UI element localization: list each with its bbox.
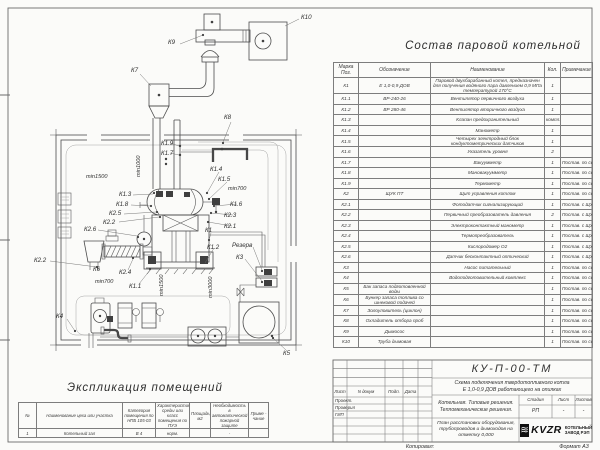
parts-row-cell: Постав. по согласов. bbox=[561, 157, 593, 168]
parts-row-cell: Постав. по согласов. bbox=[561, 168, 593, 179]
parts-row-cell: Труба дымовая bbox=[359, 337, 431, 348]
parts-row-cell: 1 bbox=[545, 241, 561, 252]
equipment-label-К1.5: К1.5 bbox=[218, 176, 231, 183]
parts-row-cell: Первичный преобразователь давления bbox=[431, 210, 545, 221]
equipment-label-К2.2: К2.2 bbox=[34, 257, 47, 264]
parts-row-cell: К1.2 bbox=[334, 104, 359, 115]
sheet-name: План расстановки оборудования, трубопров… bbox=[434, 419, 518, 441]
parts-row-cell: ЩУК ПТ bbox=[359, 189, 431, 200]
parts-row-cell: Постав. по согласов. bbox=[561, 273, 593, 284]
parts-row: К8Охладитель отбора проб1Постав. по согл… bbox=[334, 316, 593, 327]
equipment-label-К1.3: К1.3 bbox=[119, 191, 132, 198]
parts-row-cell: 2 bbox=[545, 147, 561, 158]
parts-row: К1.3Клапан предохранительныйкомпл. bbox=[334, 115, 593, 126]
document-title: Схема подключения твердотопливного котла… bbox=[434, 379, 590, 394]
column-header: Наименование bbox=[431, 63, 545, 78]
parts-row-cell: К1.3 bbox=[334, 115, 359, 126]
parts-row-cell: Вентилятор вторичного воздуха bbox=[431, 104, 545, 115]
parts-row-cell: Постав. по согласов. bbox=[561, 337, 593, 348]
column-header: Обозначение bbox=[359, 63, 431, 78]
parts-row-cell: 1 bbox=[545, 294, 561, 305]
fuel-bunker-k6 bbox=[84, 230, 152, 270]
parts-row-cell: 1 bbox=[545, 305, 561, 316]
parts-row-cell: ВР-240-26 bbox=[359, 94, 431, 105]
parts-row-cell: Дымосос bbox=[359, 326, 431, 337]
parts-row-cell: К2.4 bbox=[334, 231, 359, 242]
parts-row-cell: ВР 280-46 bbox=[359, 104, 431, 115]
parts-row: К10Труба дымовая1Постав. по согласов. bbox=[334, 337, 593, 348]
drawing-sheet: К10К9К7К8К1.9К1.7К1.4К1.5К1.6К2.3К2.1К1К… bbox=[0, 0, 600, 450]
parts-row-cell bbox=[561, 78, 593, 94]
parts-row-cell: 1 bbox=[545, 168, 561, 179]
equipment-label-К1.9: К1.9 bbox=[161, 140, 174, 147]
parts-row-cell: 1 bbox=[545, 178, 561, 189]
parts-row: К2.5Кислородомер О21Постав. с ЩУК ПТ bbox=[334, 241, 593, 252]
parts-row-cell bbox=[561, 136, 593, 147]
water-tank-k5 bbox=[239, 302, 279, 343]
parts-row-cell bbox=[359, 115, 431, 126]
equipment-label-К3: К3 bbox=[236, 254, 244, 261]
parts-row-cell: 1 bbox=[545, 199, 561, 210]
parts-row-cell: Бункер запаса топлива со шнековой подаче… bbox=[359, 294, 431, 305]
parts-row-cell: Постав. по согласов. bbox=[561, 326, 593, 337]
parts-row-cell: К1.8 bbox=[334, 168, 359, 179]
equipment-label-К2.4: К2.4 bbox=[119, 269, 132, 276]
parts-row-cell: Постав. по согласов. bbox=[561, 305, 593, 316]
parts-row-cell: К2.6 bbox=[334, 252, 359, 263]
dimension-label-min1500: min1500 bbox=[159, 274, 165, 296]
parts-row-cell: Термопреобразователь bbox=[431, 231, 545, 242]
parts-row-cell: К2 bbox=[334, 189, 359, 200]
parts-row: К2.1Фотодатчик сигнализирующий1Постав. с… bbox=[334, 199, 593, 210]
equipment-label-К2.5: К2.5 bbox=[109, 210, 122, 217]
column-header: Необходимость в автоматической пожарной … bbox=[211, 403, 249, 429]
parts-row-cell: Манометр bbox=[431, 125, 545, 136]
parts-row-cell bbox=[359, 262, 431, 273]
parts-row-cell: К2.3 bbox=[334, 220, 359, 231]
equipment-label-К1: К1 bbox=[205, 227, 212, 234]
parts-row: К2.6Датчик бесконтактный оптический1Пост… bbox=[334, 252, 593, 263]
parts-row: К7Золоуловитель (циклон)1Постав. по согл… bbox=[334, 305, 593, 316]
parts-row: К1.8Мановакуумметр1Постав. по согласов. bbox=[334, 168, 593, 179]
equipment-label-К1.6: К1.6 bbox=[230, 201, 243, 208]
equipment-label-К10: К10 bbox=[301, 14, 312, 21]
parts-row-cell: 1 bbox=[545, 125, 561, 136]
parts-row: К2ЩУК ПТЩит управления котлом1Постав. по… bbox=[334, 189, 593, 200]
parts-row: К1.9Термометр1Постав. по согласов. bbox=[334, 178, 593, 189]
parts-row-cell: К2.1 bbox=[334, 199, 359, 210]
sheet-value: - bbox=[552, 405, 575, 418]
parts-row-cell: 1 bbox=[545, 283, 561, 294]
parts-row: К3Насос питательный1Постав. по согласов. bbox=[334, 262, 593, 273]
parts-row: К1.5Четырех электродный блок кондуктомет… bbox=[334, 136, 593, 147]
sheets-col-label: Листов bbox=[575, 395, 592, 405]
boiler-body bbox=[152, 215, 209, 262]
parts-row-cell: Постав. с ЩУК ПТ bbox=[561, 199, 593, 210]
parts-row-cell: 2 bbox=[545, 210, 561, 221]
exhaust-duct bbox=[196, 30, 250, 42]
parts-row-cell: Постав. по согласов. bbox=[561, 178, 593, 189]
col-sign: Подп. bbox=[385, 387, 403, 396]
equipment-label-К1.8: К1.8 bbox=[116, 201, 129, 208]
parts-row-cell: Насос питательный bbox=[431, 262, 545, 273]
explication-row: 1Котельный залВ 4норм.- bbox=[19, 429, 269, 438]
parts-row-cell bbox=[359, 125, 431, 136]
sheet-col-label: Лист bbox=[552, 395, 575, 405]
parts-row-cell: 1 bbox=[545, 104, 561, 115]
equipment-label-К2.2: К2.2 bbox=[103, 219, 116, 226]
parts-row-cell bbox=[431, 305, 545, 316]
parts-row-cell bbox=[359, 231, 431, 242]
parts-row-cell: К8 bbox=[334, 316, 359, 327]
boiler-drum bbox=[147, 189, 203, 215]
parts-row-cell: К1.5 bbox=[334, 136, 359, 147]
parts-row-cell: Клапан предохранительный bbox=[431, 115, 545, 126]
parts-row-cell: 1 bbox=[545, 337, 561, 348]
parts-row-cell: Постав. с ЩУК ПТ bbox=[561, 252, 593, 263]
parts-row-cell bbox=[359, 136, 431, 147]
parts-row-cell: Электроконтактный манометр bbox=[431, 220, 545, 231]
explication-row-cell: В 4 bbox=[123, 429, 156, 438]
column-header: Приме - чание bbox=[249, 403, 269, 429]
object-name: Котельная. Типовые решения. Тепломеханич… bbox=[434, 396, 518, 417]
parts-row-cell: Указатель уровня bbox=[431, 147, 545, 158]
parts-row-cell bbox=[561, 104, 593, 115]
equipment-label-Резерв: Резерв bbox=[232, 242, 253, 249]
parts-row-cell: Датчик бесконтактный оптический bbox=[431, 252, 545, 263]
parts-row-cell: Постав. по согласов. bbox=[561, 316, 593, 327]
equipment-label-К1.7: К1.7 bbox=[161, 150, 174, 157]
parts-row-cell: Щит управления котлом bbox=[431, 189, 545, 200]
explication-row-cell bbox=[249, 429, 269, 438]
equipment-label-К1.4: К1.4 bbox=[210, 166, 223, 173]
dimension-label-min1000: min1000 bbox=[136, 155, 142, 177]
parts-row-cell: Фотодатчик сигнализирующий bbox=[431, 199, 545, 210]
parts-row-cell: 1 bbox=[545, 136, 561, 147]
parts-row-cell bbox=[359, 178, 431, 189]
dimension-label-min1500: min1500 bbox=[86, 174, 108, 180]
parts-row-cell: 1 bbox=[545, 189, 561, 200]
parts-row: К2.4Термопреобразователь1Постав. с ЩУК П… bbox=[334, 231, 593, 242]
parts-row-cell bbox=[561, 115, 593, 126]
leader-lines bbox=[50, 19, 299, 350]
parts-row-cell bbox=[359, 252, 431, 263]
parts-row-cell: К1.1 bbox=[334, 94, 359, 105]
parts-row-cell: Паровой двухбарабанный котел, предназнач… bbox=[431, 78, 545, 94]
parts-row: К1.2ВР 280-46Вентилятор вторичного возду… bbox=[334, 104, 593, 115]
parts-row-cell bbox=[359, 168, 431, 179]
col-sheet: Лист bbox=[333, 387, 347, 396]
parts-row-cell: 1 bbox=[545, 78, 561, 94]
kvzr-logo-text: KVZR bbox=[531, 424, 562, 436]
parts-row-cell: Вакуумметр bbox=[431, 157, 545, 168]
parts-row-cell bbox=[431, 283, 545, 294]
explication-row-cell: Котельный зал bbox=[37, 429, 123, 438]
company-line1: КОТЕЛЬНЫЙ bbox=[565, 425, 592, 430]
parts-row-cell: К3 bbox=[334, 262, 359, 273]
col-doc: N докум bbox=[347, 387, 385, 396]
col-date: Дата bbox=[403, 387, 418, 396]
role-gip: ГИП bbox=[335, 411, 380, 418]
parts-row: К2.3Электроконтактный манометр1Постав. с… bbox=[334, 220, 593, 231]
doc-title-line1: Схема подключения твердотопливного котла bbox=[454, 380, 569, 386]
format-label: Формат А3 bbox=[552, 443, 596, 450]
doc-title-line2: Е 1,0-0,9 ДОВ работающего на опилках bbox=[463, 387, 562, 393]
parts-row: К4Водоподготовительный комплекс1Постав. … bbox=[334, 273, 593, 284]
parts-row-cell: Постав. с ЩУК ПТ bbox=[561, 210, 593, 221]
parts-row-cell: К1.4 bbox=[334, 125, 359, 136]
parts-row-cell bbox=[359, 241, 431, 252]
stage-label: Стадия bbox=[519, 395, 552, 405]
equipment-label-К9: К9 bbox=[168, 39, 176, 46]
parts-row-cell: Вентилятор первичного воздуха bbox=[431, 94, 545, 105]
company-logo: ≋ KVZR КОТЕЛЬНЫЙ ЗАВОД РЭП bbox=[520, 418, 592, 442]
explication-row-cell: норм. bbox=[156, 429, 190, 438]
parts-row-cell: 1 bbox=[545, 316, 561, 327]
explication-row-cell: 1 bbox=[19, 429, 37, 438]
parts-row-cell bbox=[431, 337, 545, 348]
kvzr-logo-icon: ≋ bbox=[520, 424, 529, 437]
parts-row-cell bbox=[359, 199, 431, 210]
parts-row-cell bbox=[561, 94, 593, 105]
equipment-label-К7: К7 bbox=[131, 67, 139, 74]
dimension-label-min3000: min3000 bbox=[208, 276, 214, 298]
parts-row-cell: 1 bbox=[545, 94, 561, 105]
column-header: Наименование цеха или участка bbox=[37, 403, 123, 429]
equipment-label-К2.3: К2.3 bbox=[224, 212, 237, 219]
explication-row-cell bbox=[190, 429, 211, 438]
parts-row: К6Бункер запаса топлива со шнековой пода… bbox=[334, 294, 593, 305]
parts-row-cell: 1 bbox=[545, 231, 561, 242]
parts-row: К9Дымосос1Постав. по согласов. bbox=[334, 326, 593, 337]
sample-cooler-k8 bbox=[213, 149, 247, 162]
parts-table-title: Состав паровой котельной bbox=[398, 40, 588, 52]
column-header: Площадь, м2 bbox=[190, 403, 211, 429]
parts-row-cell bbox=[359, 273, 431, 284]
parts-row: К1.4Манометр1 bbox=[334, 125, 593, 136]
parts-row-cell: Постав. по согласов. bbox=[561, 189, 593, 200]
parts-row-cell: К1.9 bbox=[334, 178, 359, 189]
parts-row-cell: Постав. с ЩУК ПТ bbox=[561, 220, 593, 231]
equipment-label-К8: К8 bbox=[224, 114, 232, 121]
parts-table: Марка Поз.ОбозначениеНаименованиеКол.При… bbox=[333, 62, 593, 348]
parts-row-cell: Термометр bbox=[431, 178, 545, 189]
column-header: Марка Поз. bbox=[334, 63, 359, 78]
parts-row-cell bbox=[561, 125, 593, 136]
parts-row-cell: Постав. по согласов. bbox=[561, 283, 593, 294]
company-line2: ЗАВОД РЭП bbox=[565, 430, 590, 435]
document-code: КУ-П-00-ТМ bbox=[432, 361, 592, 377]
parts-row-cell: Четырех электродный блок кондуктометриче… bbox=[431, 136, 545, 147]
parts-row: К1.6Указатель уровня2 bbox=[334, 147, 593, 158]
parts-row: К1.7Вакуумметр1Постав. по согласов. bbox=[334, 157, 593, 168]
parts-row-cell: К1 bbox=[334, 78, 359, 94]
equipment-label-К6: К6 bbox=[93, 266, 101, 273]
parts-row-cell: 1 bbox=[545, 252, 561, 263]
parts-row-cell bbox=[359, 210, 431, 221]
column-header: № bbox=[19, 403, 37, 429]
fold-marks bbox=[0, 95, 10, 340]
parts-row-cell: 1 bbox=[545, 157, 561, 168]
explication-title: Экспликация помещений bbox=[60, 382, 230, 394]
role-project: Проект. bbox=[335, 397, 380, 404]
parts-row-cell: Бак запаса подготовленной воды bbox=[359, 283, 431, 294]
parts-row-cell bbox=[431, 294, 545, 305]
parts-row: К1.1ВР-240-26Вентилятор первичного возду… bbox=[334, 94, 593, 105]
parts-row-cell bbox=[431, 326, 545, 337]
equipment-label-К1.2: К1.2 bbox=[207, 244, 220, 251]
dimension-label-min700: min700 bbox=[228, 186, 247, 192]
parts-row: К5Бак запаса подготовленной воды1Постав.… bbox=[334, 283, 593, 294]
parts-row-cell: 1 bbox=[545, 326, 561, 337]
control-panel-k2 bbox=[58, 193, 71, 238]
parts-row-cell bbox=[431, 316, 545, 327]
parts-row-cell bbox=[561, 147, 593, 158]
parts-row-cell: К6 bbox=[334, 294, 359, 305]
parts-row-cell bbox=[359, 157, 431, 168]
column-header: Категория помещения по НПБ 105-03 bbox=[123, 403, 156, 429]
equipment-label-К2.1: К2.1 bbox=[224, 223, 236, 230]
parts-row-cell: Водоподготовительный комплекс bbox=[431, 273, 545, 284]
parts-row-cell: 1 bbox=[545, 273, 561, 284]
parts-row-header: Марка Поз.ОбозначениеНаименованиеКол.При… bbox=[334, 63, 593, 78]
parts-row-cell: К4 bbox=[334, 273, 359, 284]
parts-row-cell: Постав. с ЩУК ПТ bbox=[561, 231, 593, 242]
dimension-label-min700: min700 bbox=[95, 279, 114, 285]
dosing-pumps bbox=[188, 327, 226, 346]
parts-row-cell: К1.7 bbox=[334, 157, 359, 168]
copied-label: Копировал: bbox=[395, 443, 445, 450]
column-header: Кол. bbox=[545, 63, 561, 78]
sheets-value: - bbox=[575, 405, 592, 418]
parts-row-cell: Постав. по согласов. bbox=[561, 262, 593, 273]
parts-row-cell: 1 bbox=[545, 262, 561, 273]
stage-value: РП bbox=[519, 405, 552, 418]
parts-row-cell: Е 1,0-0,9 ДОВ bbox=[359, 78, 431, 94]
equipment-label-К2.6: К2.6 bbox=[84, 226, 97, 233]
water-treatment-k4 bbox=[89, 298, 239, 348]
parts-row-cell: К2.2 bbox=[334, 210, 359, 221]
equipment-label-К1.1: К1.1 bbox=[129, 283, 141, 290]
column-header: Примечание bbox=[561, 63, 593, 78]
parts-row-cell: К10 bbox=[334, 337, 359, 348]
parts-row-cell: К9 bbox=[334, 326, 359, 337]
parts-row-cell: Постав. по согласов. bbox=[561, 294, 593, 305]
parts-row-cell: Золоуловитель (циклон) bbox=[359, 305, 431, 316]
parts-row-cell bbox=[359, 147, 431, 158]
explication-table: №Наименование цеха или участкаКатегория … bbox=[18, 402, 269, 438]
parts-row-cell: К1.6 bbox=[334, 147, 359, 158]
parts-row-cell: Кислородомер О2 bbox=[431, 241, 545, 252]
parts-row-cell: Мановакуумметр bbox=[431, 168, 545, 179]
parts-row-cell: К2.5 bbox=[334, 241, 359, 252]
parts-row-cell: К5 bbox=[334, 283, 359, 294]
parts-row-cell bbox=[359, 220, 431, 231]
column-header: Характеристика среды или класс помещения… bbox=[156, 403, 190, 429]
explication-row-cell: - bbox=[211, 429, 249, 438]
explication-row-header: №Наименование цеха или участкаКатегория … bbox=[19, 403, 269, 429]
equipment-label-К4: К4 bbox=[56, 313, 64, 320]
parts-row-cell: Постав. с ЩУК ПТ bbox=[561, 241, 593, 252]
diagram-labels: К10К9К7К8К1.9К1.7К1.4К1.5К1.6К2.3К2.1К1К… bbox=[34, 14, 312, 357]
equipment-label-К5: К5 bbox=[283, 350, 291, 357]
parts-row: К2.2Первичный преобразователь давления2П… bbox=[334, 210, 593, 221]
parts-row-cell: Охладитель отбора проб bbox=[359, 316, 431, 327]
parts-row-cell: К7 bbox=[334, 305, 359, 316]
role-checked: Проверил bbox=[335, 404, 380, 411]
parts-row-cell: 1 bbox=[545, 220, 561, 231]
parts-row: К1Е 1,0-0,9 ДОВПаровой двухбарабанный ко… bbox=[334, 78, 593, 94]
parts-row-cell: компл. bbox=[545, 115, 561, 126]
